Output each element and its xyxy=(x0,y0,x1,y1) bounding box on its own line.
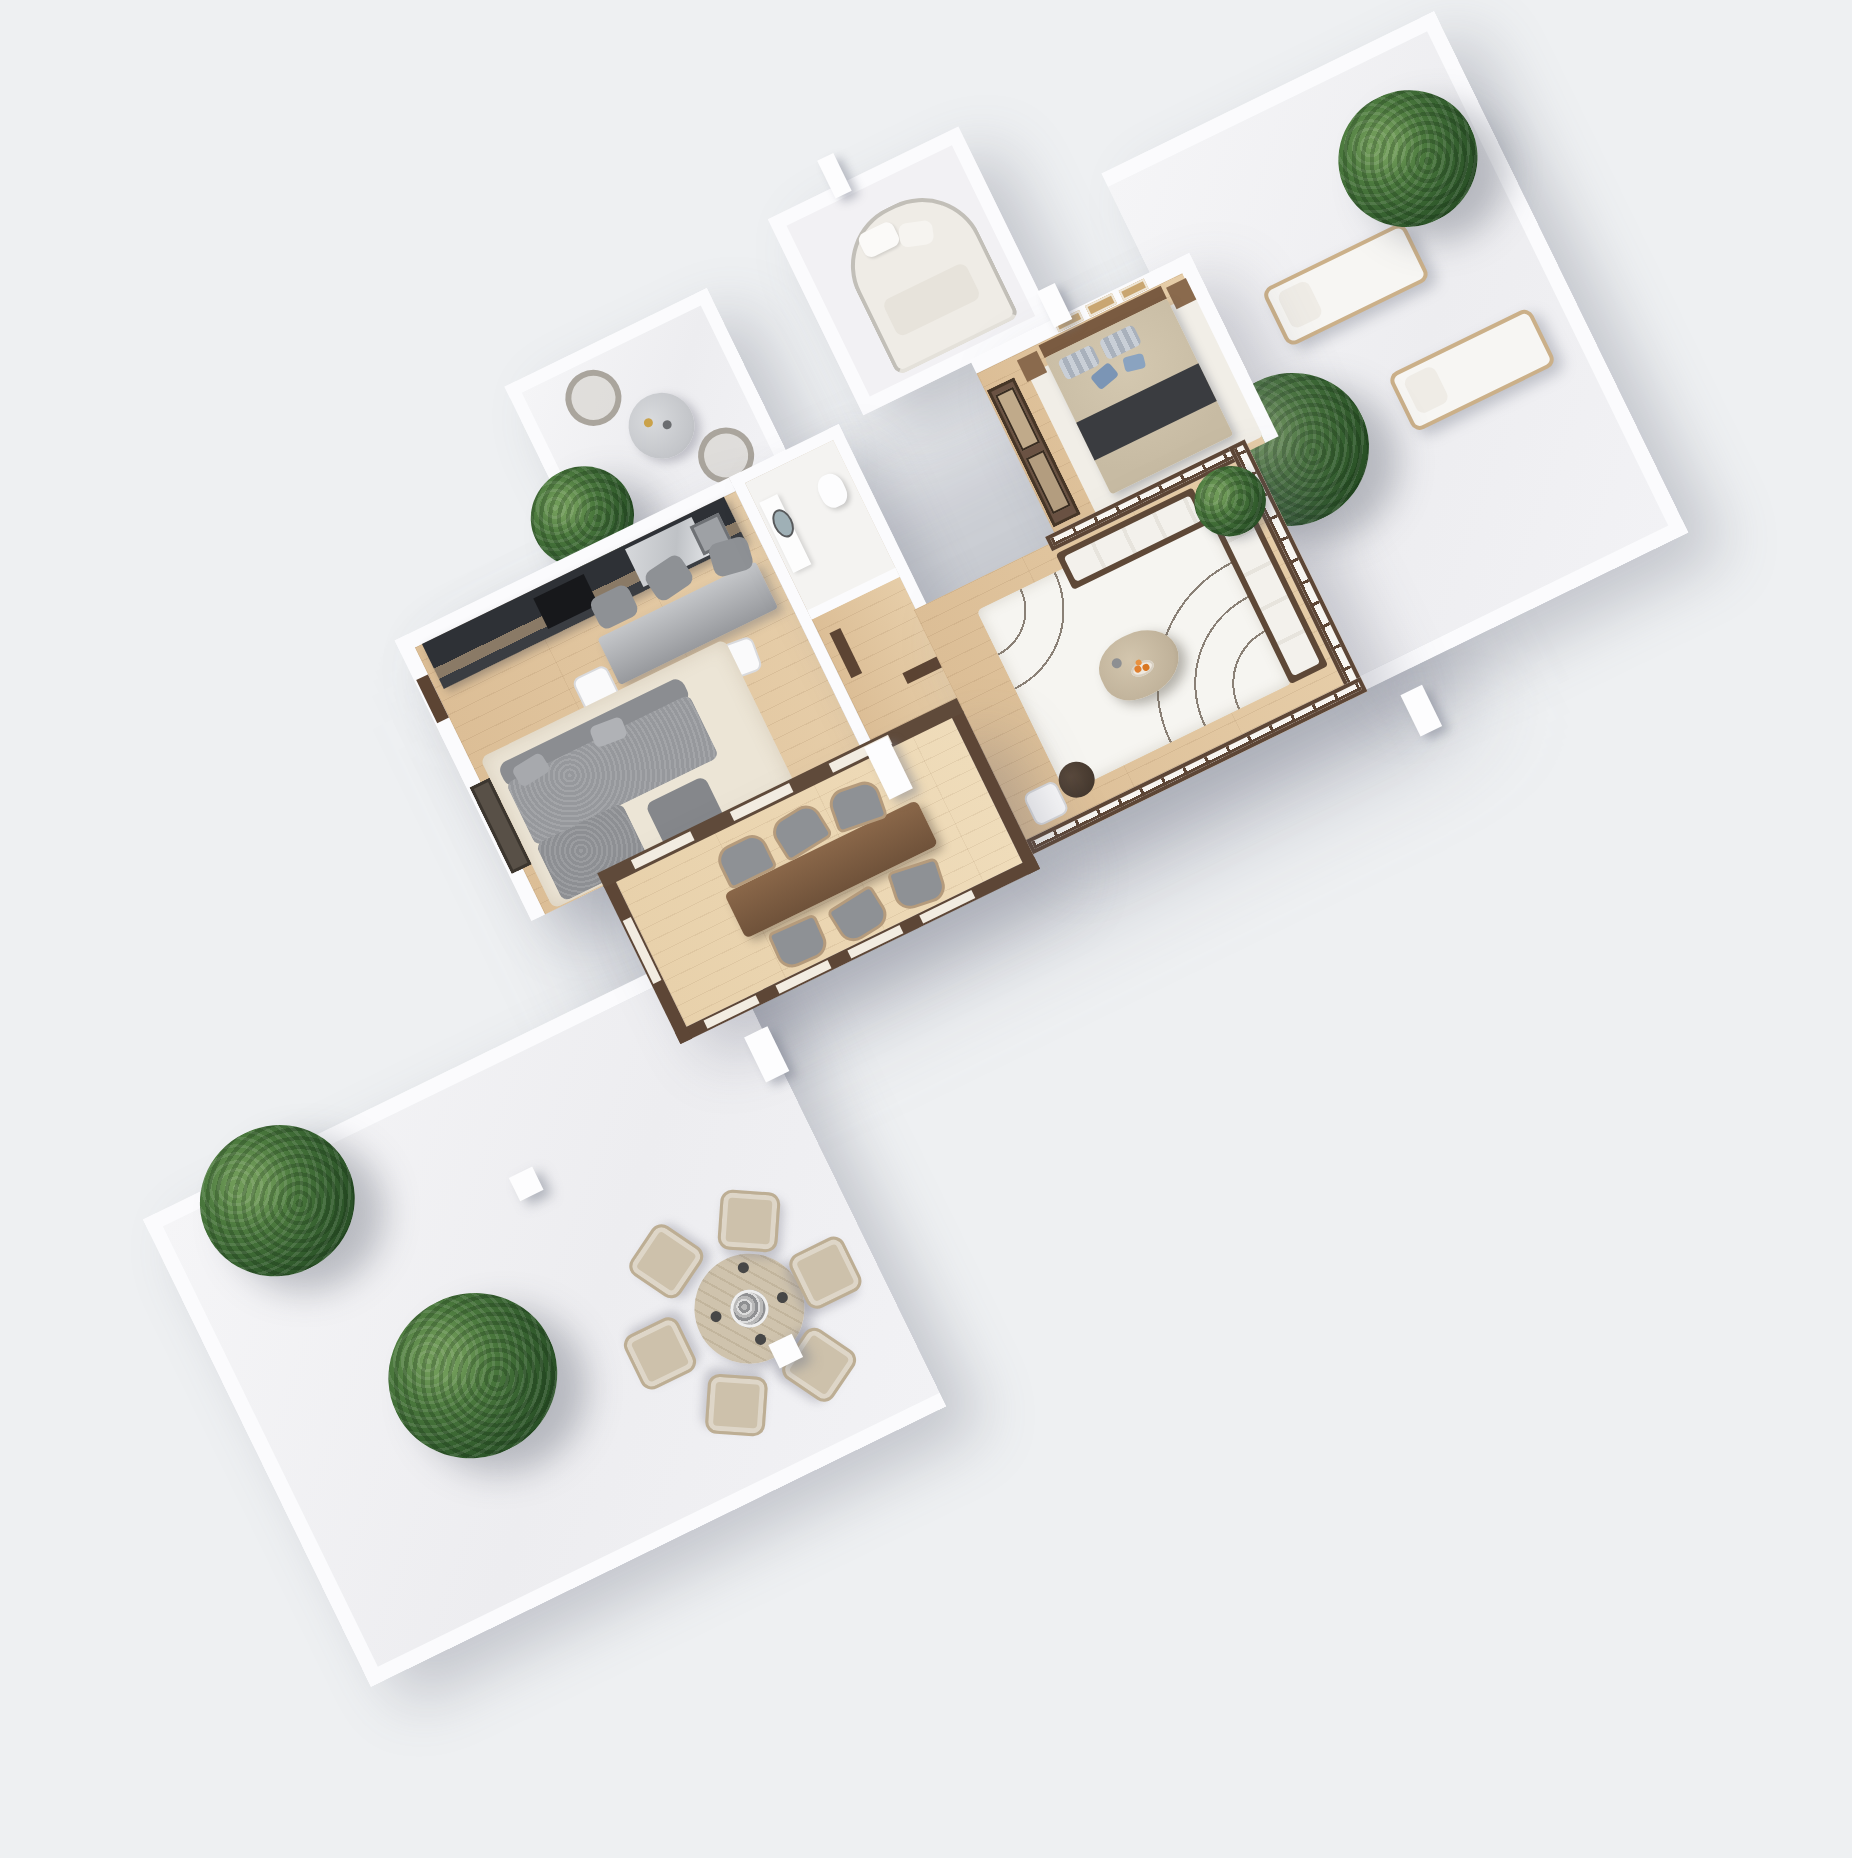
terrace-left xyxy=(143,939,946,1687)
sun-lounger-1 xyxy=(1261,221,1431,348)
hall-door-1 xyxy=(829,628,862,678)
daybed xyxy=(829,176,1020,376)
outdoor-chair-3 xyxy=(704,1373,768,1437)
bistro-table xyxy=(617,382,705,470)
bistro-chair-1 xyxy=(556,360,631,435)
terrace-left-tree-1 xyxy=(174,1099,380,1302)
sun-lounger-2 xyxy=(1387,306,1557,433)
render-canvas: { "scene": { "type": "3d-floor-plan-rend… xyxy=(0,0,1852,1858)
floorplan-scene xyxy=(0,0,1852,1758)
light-cube-1 xyxy=(509,1167,544,1202)
outdoor-chair-6 xyxy=(717,1189,781,1253)
outdoor-chair-4 xyxy=(620,1313,700,1393)
terrace-right-tree-2 xyxy=(1315,67,1500,251)
terrace-left-tree-2 xyxy=(361,1265,586,1487)
outdoor-chair-5 xyxy=(625,1220,708,1303)
